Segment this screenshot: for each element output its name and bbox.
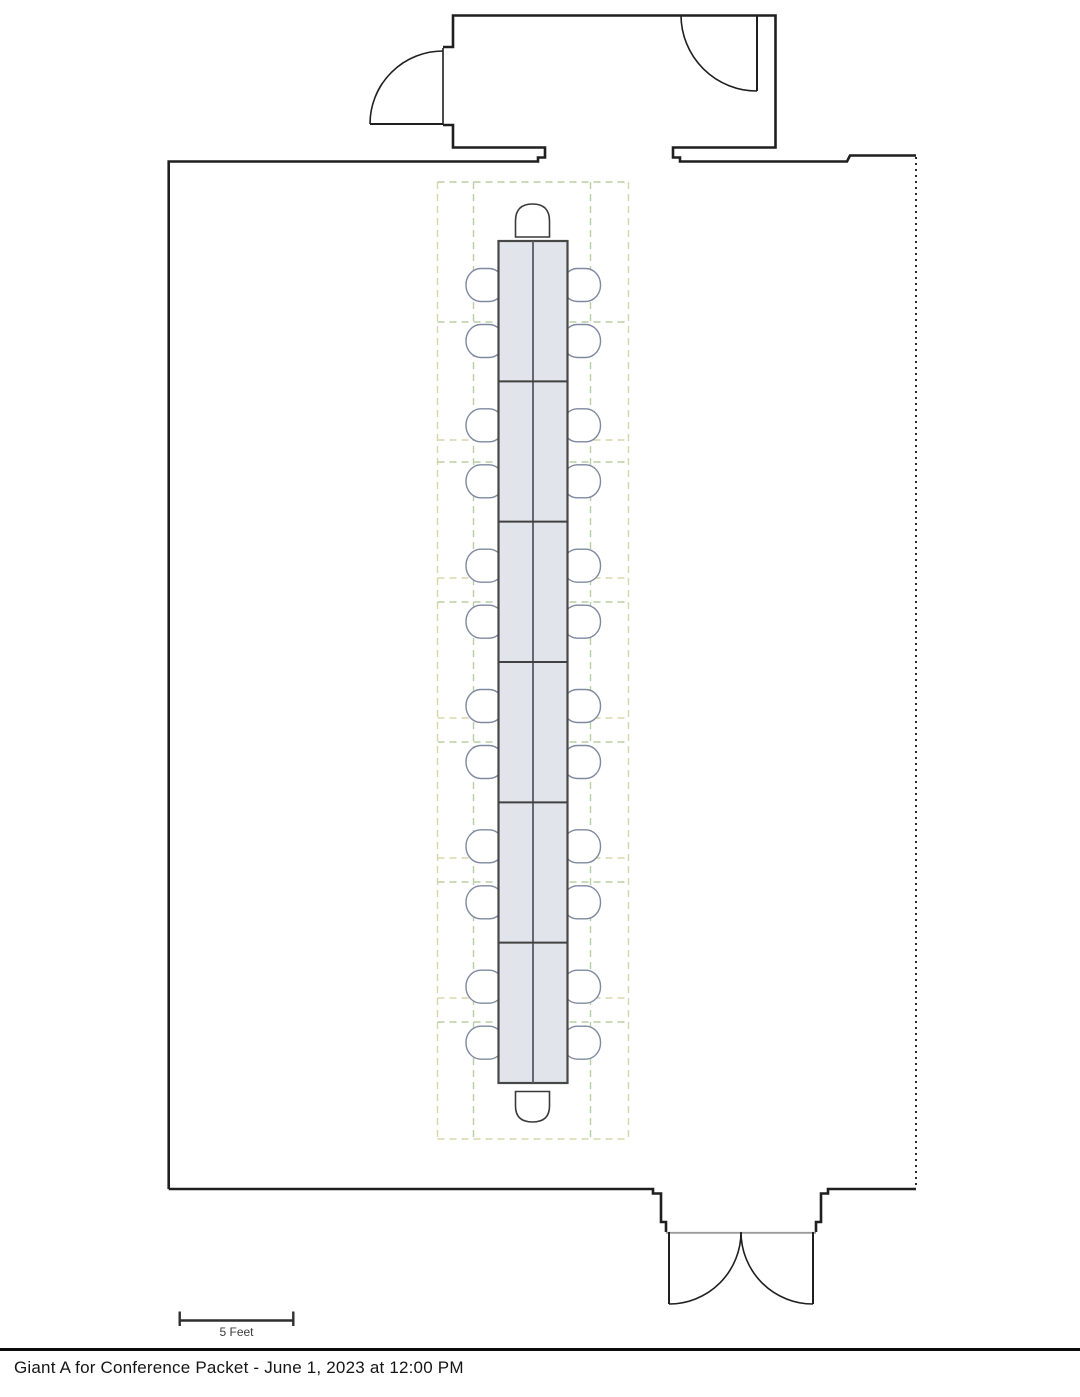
conference-table — [499, 241, 568, 1083]
scale-bar — [179, 1312, 294, 1327]
chair-foot — [516, 1092, 550, 1123]
door-top-right — [681, 16, 757, 92]
wall-vestibule — [443, 16, 916, 162]
caption-divider — [0, 1348, 1080, 1351]
door-swing-arc-left — [669, 1232, 741, 1304]
door-swing-arc — [370, 51, 443, 124]
chair-head — [516, 204, 550, 237]
scale-bar-label: 5 Feet — [179, 1325, 294, 1339]
door-top-left — [370, 48, 443, 124]
door-swing-arc — [681, 16, 757, 92]
wall-south-east — [816, 1189, 916, 1232]
door-swing-arc-right — [741, 1232, 813, 1304]
floor-plan-canvas — [0, 0, 1080, 1397]
wall-south-west — [169, 1189, 666, 1232]
double-door-bottom — [666, 1232, 816, 1304]
page-caption: Giant A for Conference Packet - June 1, … — [14, 1358, 464, 1378]
